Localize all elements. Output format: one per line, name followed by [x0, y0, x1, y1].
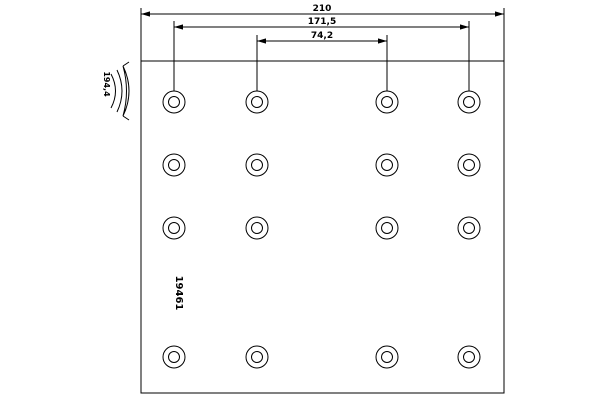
- hole-inner: [169, 97, 180, 108]
- hole-inner: [382, 223, 393, 234]
- hole-outer: [376, 346, 398, 368]
- hole-inner: [382, 97, 393, 108]
- hole-outer: [246, 346, 268, 368]
- arrow-head-right: [378, 38, 387, 43]
- hole-outer: [246, 217, 268, 239]
- drawing-canvas: 210171,574,219461194,4: [0, 0, 600, 400]
- curvature-symbol: [111, 62, 129, 120]
- hole-outer: [246, 154, 268, 176]
- hole-inner: [169, 352, 180, 363]
- plate-outline: [141, 61, 504, 393]
- arrow-head-right: [460, 24, 469, 29]
- hole-inner: [464, 352, 475, 363]
- hole-outer: [246, 91, 268, 113]
- hole-outer: [458, 346, 480, 368]
- hole-outer: [458, 154, 480, 176]
- hole-inner: [464, 223, 475, 234]
- hole-outer: [376, 91, 398, 113]
- curvature-tick-bottom: [123, 116, 129, 120]
- hole-outer: [376, 217, 398, 239]
- hole-inner: [464, 97, 475, 108]
- hole-outer: [458, 91, 480, 113]
- hole-inner: [382, 352, 393, 363]
- arrow-head-left: [174, 24, 183, 29]
- hole-inner: [252, 223, 263, 234]
- dimension-label: 171,5: [308, 17, 336, 27]
- hole-inner: [252, 160, 263, 171]
- curvature-crescent: [123, 66, 129, 116]
- arrow-head-left: [141, 11, 150, 16]
- radius-label: 194,4: [102, 71, 111, 97]
- hole-inner: [169, 223, 180, 234]
- hole-outer: [376, 154, 398, 176]
- dimension-label: 210: [313, 4, 332, 14]
- hole-outer: [163, 154, 185, 176]
- hole-outer: [163, 217, 185, 239]
- hole-inner: [169, 160, 180, 171]
- arrow-head-right: [495, 11, 504, 16]
- hole-outer: [163, 346, 185, 368]
- hole-inner: [382, 160, 393, 171]
- hole-inner: [252, 97, 263, 108]
- part-number-label: 19461: [173, 276, 184, 311]
- hole-outer: [458, 217, 480, 239]
- arrow-head-left: [257, 38, 266, 43]
- curvature-arc-2: [117, 70, 122, 112]
- hole-inner: [464, 160, 475, 171]
- hole-inner: [252, 352, 263, 363]
- dimension-label: 74,2: [311, 31, 333, 41]
- hole-outer: [163, 91, 185, 113]
- curvature-tick-top: [123, 62, 129, 66]
- brake-lining-drawing: 210171,574,219461194,4: [0, 0, 600, 400]
